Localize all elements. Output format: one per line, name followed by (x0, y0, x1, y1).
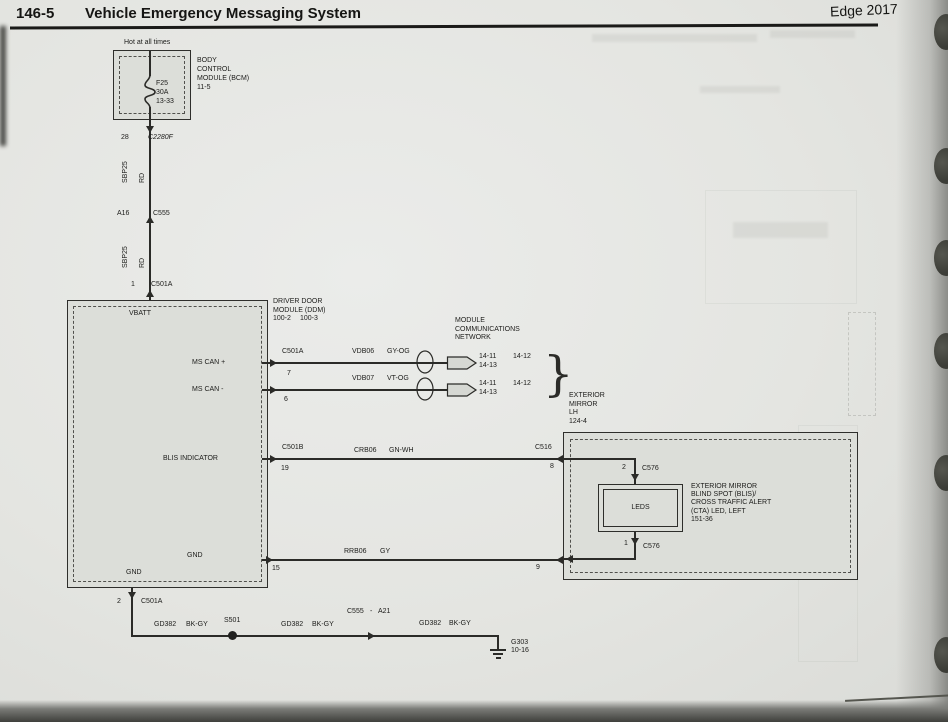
wire-ground-v (131, 588, 133, 636)
mirror-label-line: 124-4 (569, 418, 605, 427)
mirror-led-label-line: CROSS TRAFFIC ALERT (691, 499, 771, 507)
splice-label: S501 (224, 617, 240, 626)
connector-arrow-icon (270, 455, 277, 463)
bleedthrough-text-shape (700, 86, 780, 93)
wire-blis (262, 458, 564, 460)
page-bottom-shadow (0, 700, 948, 722)
feed-seg2-color: RD (139, 258, 147, 268)
connector-arrow-icon (146, 290, 154, 297)
mirror-label: EXTERIOR MIRROR LH 124-4 (569, 392, 605, 426)
network-header-line: NETWORK (455, 334, 520, 343)
blis-color: GN-WH (389, 447, 414, 456)
row2-pin: 6 (284, 396, 288, 405)
ddm-box-inner-dashed (73, 306, 262, 582)
bcm-label-line: MODULE (BCM) (197, 74, 249, 83)
ground-exit-pin: 2 (117, 598, 121, 607)
ground-conn-name: C555 (347, 608, 364, 617)
bleedthrough-dashed-box (848, 312, 876, 416)
ddm-gnd-label: GND (187, 552, 203, 561)
ground-seg2-circuit: GD382 (281, 621, 303, 630)
wire-feed-vertical (149, 120, 151, 300)
row2-ref2: 14-13 (479, 389, 497, 398)
connector-arrow-icon (266, 556, 273, 564)
twisted-pair-icon (413, 350, 437, 402)
leds-box-inner: LEDS (603, 489, 678, 527)
wire-ground-drop (497, 635, 499, 649)
mirror-label-line: LH (569, 409, 605, 418)
c501a-name: C501A (151, 281, 172, 290)
hot-at-all-times-label: Hot at all times (124, 39, 170, 48)
wire-gnd (262, 559, 564, 561)
ground-conn-pin: A21 (378, 608, 390, 617)
network-header: MODULE COMMUNICATIONS NETWORK (455, 317, 520, 343)
blis-to-pin: 8 (550, 463, 554, 472)
bleedthrough-text-shape (592, 34, 757, 42)
bcm-label: BODY CONTROL MODULE (BCM) 11-5 (197, 56, 249, 92)
ground-symbol-bar (496, 657, 501, 659)
connector-arrow-icon (270, 386, 277, 394)
connector-arrow-icon (556, 455, 563, 463)
bcm-label-line: CONTROL (197, 65, 249, 74)
network-connector-icon (447, 356, 477, 370)
c2280f-pin: 28 (121, 134, 129, 143)
fuse-rating: 30A (156, 89, 168, 98)
ddm-label-line: MODULE (DDM) (273, 307, 326, 316)
ground-exit-conn: C501A (141, 598, 162, 607)
leds-label: LEDS (631, 504, 649, 511)
row2-ref1: 14-11 (479, 380, 496, 389)
feed-seg2-circuit: SBP25 (122, 246, 130, 268)
ground-seg1-color: BK-GY (186, 621, 208, 630)
mirror-bottom-conn: C576 (643, 543, 660, 552)
network-connector-icon (447, 383, 477, 397)
page-number: 146-5 (16, 5, 54, 22)
row1-pin: 7 (287, 370, 291, 379)
gnd-circuit: RRB06 (344, 548, 367, 557)
row1-ref2: 14-13 (479, 362, 497, 371)
wire-ground-h (131, 635, 499, 637)
network-header-line: COMMUNICATIONS (455, 326, 520, 335)
bcm-label-line: BODY (197, 56, 249, 65)
ddm-label: DRIVER DOOR MODULE (DDM) (273, 298, 326, 315)
ground-symbol-bar (493, 653, 503, 655)
gnd-pin: 15 (272, 565, 280, 574)
row1-connector: C501A (282, 348, 303, 357)
c2280f-name: C2280F (148, 134, 173, 143)
blis-circuit: CRB06 (354, 447, 377, 456)
ground-seg2-color: BK-GY (312, 621, 334, 630)
wire-mirror-bottom-h (564, 558, 636, 560)
connector-arrow-icon (631, 538, 639, 545)
feed-seg1-color: RD (139, 173, 147, 183)
ground-symbol-bar (490, 649, 506, 651)
gnd-to-pin: 9 (536, 564, 540, 573)
header-underline (10, 23, 878, 29)
c555-pin: A16 (117, 210, 129, 219)
wire-fuse-bottom (149, 107, 151, 120)
ddm-ref-a: 100-2 (273, 315, 291, 324)
ddm-gnd2-label: GND (126, 569, 142, 578)
connector-arrow-icon (556, 556, 563, 564)
row1-ref1: 14-11 (479, 353, 496, 362)
mirror-top-pin: 2 (622, 464, 626, 473)
network-header-line: MODULE (455, 317, 520, 326)
row2-ref3: 14-12 (513, 380, 531, 389)
wire-mirror-top-h (564, 458, 636, 460)
mirror-label-line: MIRROR (569, 401, 605, 410)
connector-arrow-icon (270, 359, 277, 367)
row1-circuit: VDB06 (352, 348, 374, 357)
ddm-label-line: DRIVER DOOR (273, 298, 326, 307)
c501a-pin: 1 (131, 281, 135, 290)
connector-arrow-icon (368, 632, 375, 640)
row1-ref3: 14-12 (513, 353, 531, 362)
ddm-ms-can-minus-label: MS CAN - (192, 386, 224, 395)
ground-ref: 10-16 (511, 647, 529, 656)
c555-name: C555 (153, 210, 170, 219)
ddm-vbatt-label: VBATT (129, 310, 151, 319)
feed-seg1-circuit: SBP25 (122, 161, 130, 183)
bcm-label-line: 11-5 (197, 83, 249, 92)
bleedthrough-box-shape (705, 190, 857, 304)
row2-circuit: VDB07 (352, 375, 374, 384)
ddm-ms-can-plus-label: MS CAN + (192, 359, 225, 368)
manual-page: 146-5 Vehicle Emergency Messaging System… (0, 0, 948, 722)
blis-to-connector: C516 (535, 444, 552, 453)
page-left-shadow (0, 26, 6, 146)
mirror-led-label-line: (CTA) LED, LEFT (691, 508, 771, 516)
edition-label: Edge 2017 (830, 1, 898, 20)
mirror-led-label: EXTERIOR MIRROR BLIND SPOT (BLIS)/ CROSS… (691, 483, 771, 524)
bleedthrough-text-shape (770, 30, 855, 38)
row1-color: GY-OG (387, 348, 410, 357)
fuse-ref: 13-33 (156, 98, 174, 107)
ground-seg1-circuit: GD382 (154, 621, 176, 630)
row2-color: VT-OG (387, 375, 409, 384)
ddm-ref-b: 100-3 (300, 315, 318, 324)
wire-mirror-bottom-v (634, 532, 636, 559)
connector-arrow-icon (631, 474, 639, 481)
splice-dot-icon (228, 631, 237, 640)
wire-fuse-top (149, 51, 151, 76)
mirror-led-label-line: 151-36 (691, 516, 771, 524)
connector-arrow-icon (146, 126, 154, 133)
mirror-top-conn: C576 (642, 465, 659, 474)
fuse-name: F25 (156, 80, 168, 89)
ddm-blis-indicator-label: BLIS INDICATOR (163, 455, 218, 464)
ground-seg3-color: BK-GY (449, 620, 471, 629)
mirror-bottom-pin: 1 (624, 540, 628, 549)
ground-seg3-circuit: GD382 (419, 620, 441, 629)
mirror-led-label-line: EXTERIOR MIRROR (691, 483, 771, 491)
ground-conn-sep: - (370, 608, 372, 617)
blis-connector: C501B (282, 444, 303, 453)
blis-pin: 19 (281, 465, 289, 474)
page-title: Vehicle Emergency Messaging System (85, 5, 361, 22)
mirror-label-line: EXTERIOR (569, 392, 605, 401)
connector-arrow-icon (566, 555, 573, 563)
mirror-led-label-line: BLIND SPOT (BLIS)/ (691, 491, 771, 499)
gnd-color: GY (380, 548, 390, 557)
